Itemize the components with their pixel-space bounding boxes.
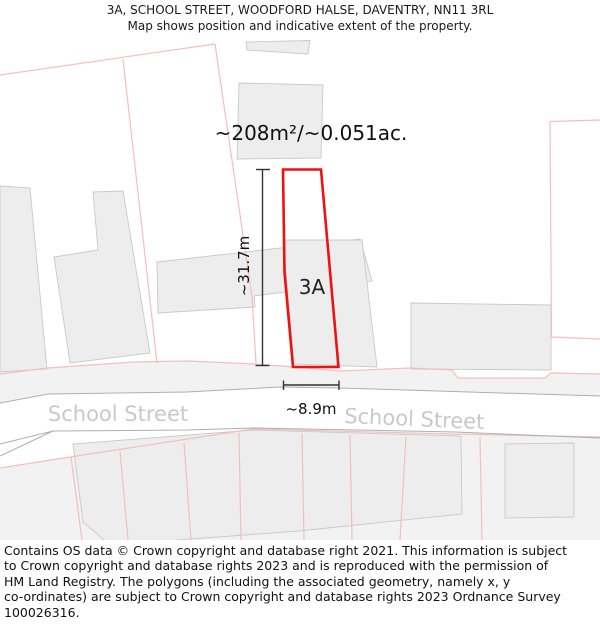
width-measure-label: ~8.9m — [285, 400, 336, 418]
copyright-line: Contains OS data © Crown copyright and d… — [4, 543, 598, 558]
copyright-line: co-ordinates) are subject to Crown copyr… — [4, 589, 598, 604]
building-footprint — [0, 186, 47, 372]
building-footprint — [411, 303, 551, 370]
street-label-left: School Street — [48, 402, 188, 426]
parcel-boundary-line — [0, 44, 215, 75]
building-footprint — [54, 191, 150, 363]
area-label: ~208m²/~0.051ac. — [215, 121, 408, 145]
page-header: 3A, SCHOOL STREET, WOODFORD HALSE, DAVEN… — [0, 0, 600, 40]
height-measure-label: ~31.7m — [235, 236, 253, 297]
copyright-line: to Crown copyright and database rights 2… — [4, 558, 598, 573]
building-footprint — [505, 443, 574, 518]
plot-label: 3A — [299, 275, 326, 299]
parcel-boundary-line — [550, 122, 600, 339]
map-canvas: ~208m²/~0.051ac.3A~31.7m~8.9mSchool Stre… — [0, 40, 600, 540]
building-footprint — [246, 41, 310, 55]
parcel-boundary-line — [550, 120, 600, 122]
page-subtitle: Map shows position and indicative extent… — [0, 18, 600, 34]
copyright-notice: Contains OS data © Crown copyright and d… — [0, 540, 598, 620]
street-label-right: School Street — [344, 404, 485, 434]
page-title: 3A, SCHOOL STREET, WOODFORD HALSE, DAVEN… — [0, 0, 600, 18]
street-edge-line — [0, 431, 53, 456]
copyright-line: 100026316. — [4, 605, 598, 620]
copyright-line: HM Land Registry. The polygons (includin… — [4, 574, 598, 589]
